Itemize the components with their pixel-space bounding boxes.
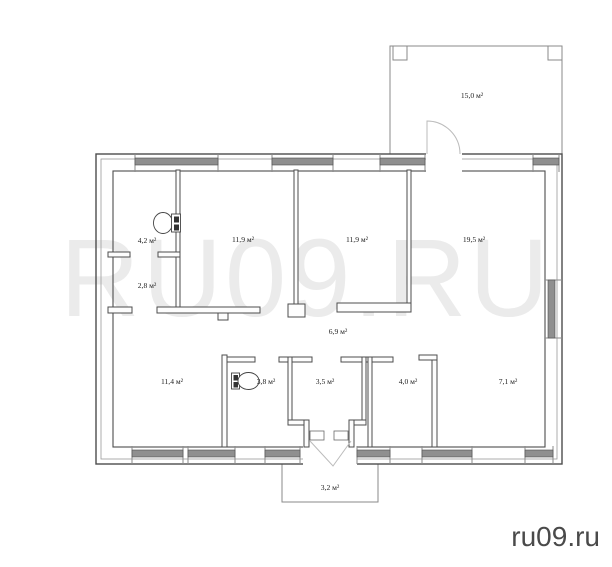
window	[548, 280, 555, 338]
room-label-hallway: 6,9 м²	[329, 327, 348, 336]
wall-segment	[288, 357, 292, 423]
window	[525, 450, 553, 457]
toilet-tank-detail	[234, 382, 239, 388]
window	[265, 450, 300, 457]
floor-plan-canvas: RU09.RU	[0, 0, 612, 567]
site-label: ru09.ru	[511, 521, 600, 552]
terrace-pillar-right	[548, 46, 562, 60]
wall-segment	[108, 252, 130, 257]
toilet-bowl	[154, 213, 173, 234]
door-swing	[427, 121, 460, 154]
terrace-outline	[390, 46, 562, 154]
room-label-room-left: 11,9 м²	[232, 235, 255, 244]
room-label-vestibule: 3,5 м²	[316, 377, 335, 386]
wall-segment	[294, 170, 298, 306]
wall-segment	[158, 252, 180, 257]
wall-end-cap	[288, 304, 305, 317]
window	[132, 450, 183, 457]
room-label-porch: 3,2 м²	[321, 483, 340, 492]
floor-plan-page: RU09.RU	[0, 0, 612, 567]
door-frame	[310, 431, 324, 440]
wall-segment	[227, 357, 255, 362]
wall-segment	[337, 303, 411, 312]
window	[380, 158, 425, 165]
wall-segment	[176, 170, 180, 312]
wall-segment	[279, 357, 312, 362]
wall-segment	[222, 355, 227, 447]
room-label-room-bottom-mid: 4,0 м²	[399, 377, 418, 386]
terrace-door-opening	[426, 153, 462, 173]
room-label-room-bottom-left: 11,4 м²	[161, 377, 184, 386]
window	[135, 158, 218, 165]
window	[272, 158, 333, 165]
wall-segment	[432, 355, 437, 447]
door-frame	[334, 431, 348, 440]
wall-segment	[407, 170, 411, 305]
wall-segment	[419, 355, 437, 360]
room-label-wc-top: 4,2 м²	[138, 236, 157, 245]
terrace-door	[427, 121, 460, 154]
wall-segment	[157, 307, 260, 313]
room-label-room-bottom-right: 7,1 м²	[499, 377, 518, 386]
toilet-tank-detail	[174, 225, 179, 231]
room-label-room-middle: 11,9 м²	[346, 235, 369, 244]
entrance-opening	[303, 445, 357, 465]
room-label-terrace: 15,0 м²	[461, 91, 484, 100]
toilet-icon	[154, 213, 181, 234]
room-label-wc-bottom: 3,8 м²	[257, 377, 276, 386]
wall-segment	[368, 357, 372, 447]
wall-segment	[362, 357, 366, 423]
window	[533, 158, 559, 165]
terrace-pillar-left	[393, 46, 407, 60]
toilet-icon	[232, 373, 260, 390]
room-label-hall-small: 2,8 м²	[138, 281, 157, 290]
wall-segment	[341, 357, 393, 362]
terrace-wall	[390, 46, 562, 154]
window	[188, 450, 235, 457]
toilet-tank-detail	[234, 375, 239, 381]
wall-segment	[304, 420, 309, 447]
window	[422, 450, 472, 457]
wall-notch	[218, 313, 228, 320]
toilet-tank-detail	[174, 217, 179, 223]
window	[357, 450, 390, 457]
room-label-room-right: 19,5 м²	[463, 235, 486, 244]
wall-segment	[108, 307, 132, 313]
